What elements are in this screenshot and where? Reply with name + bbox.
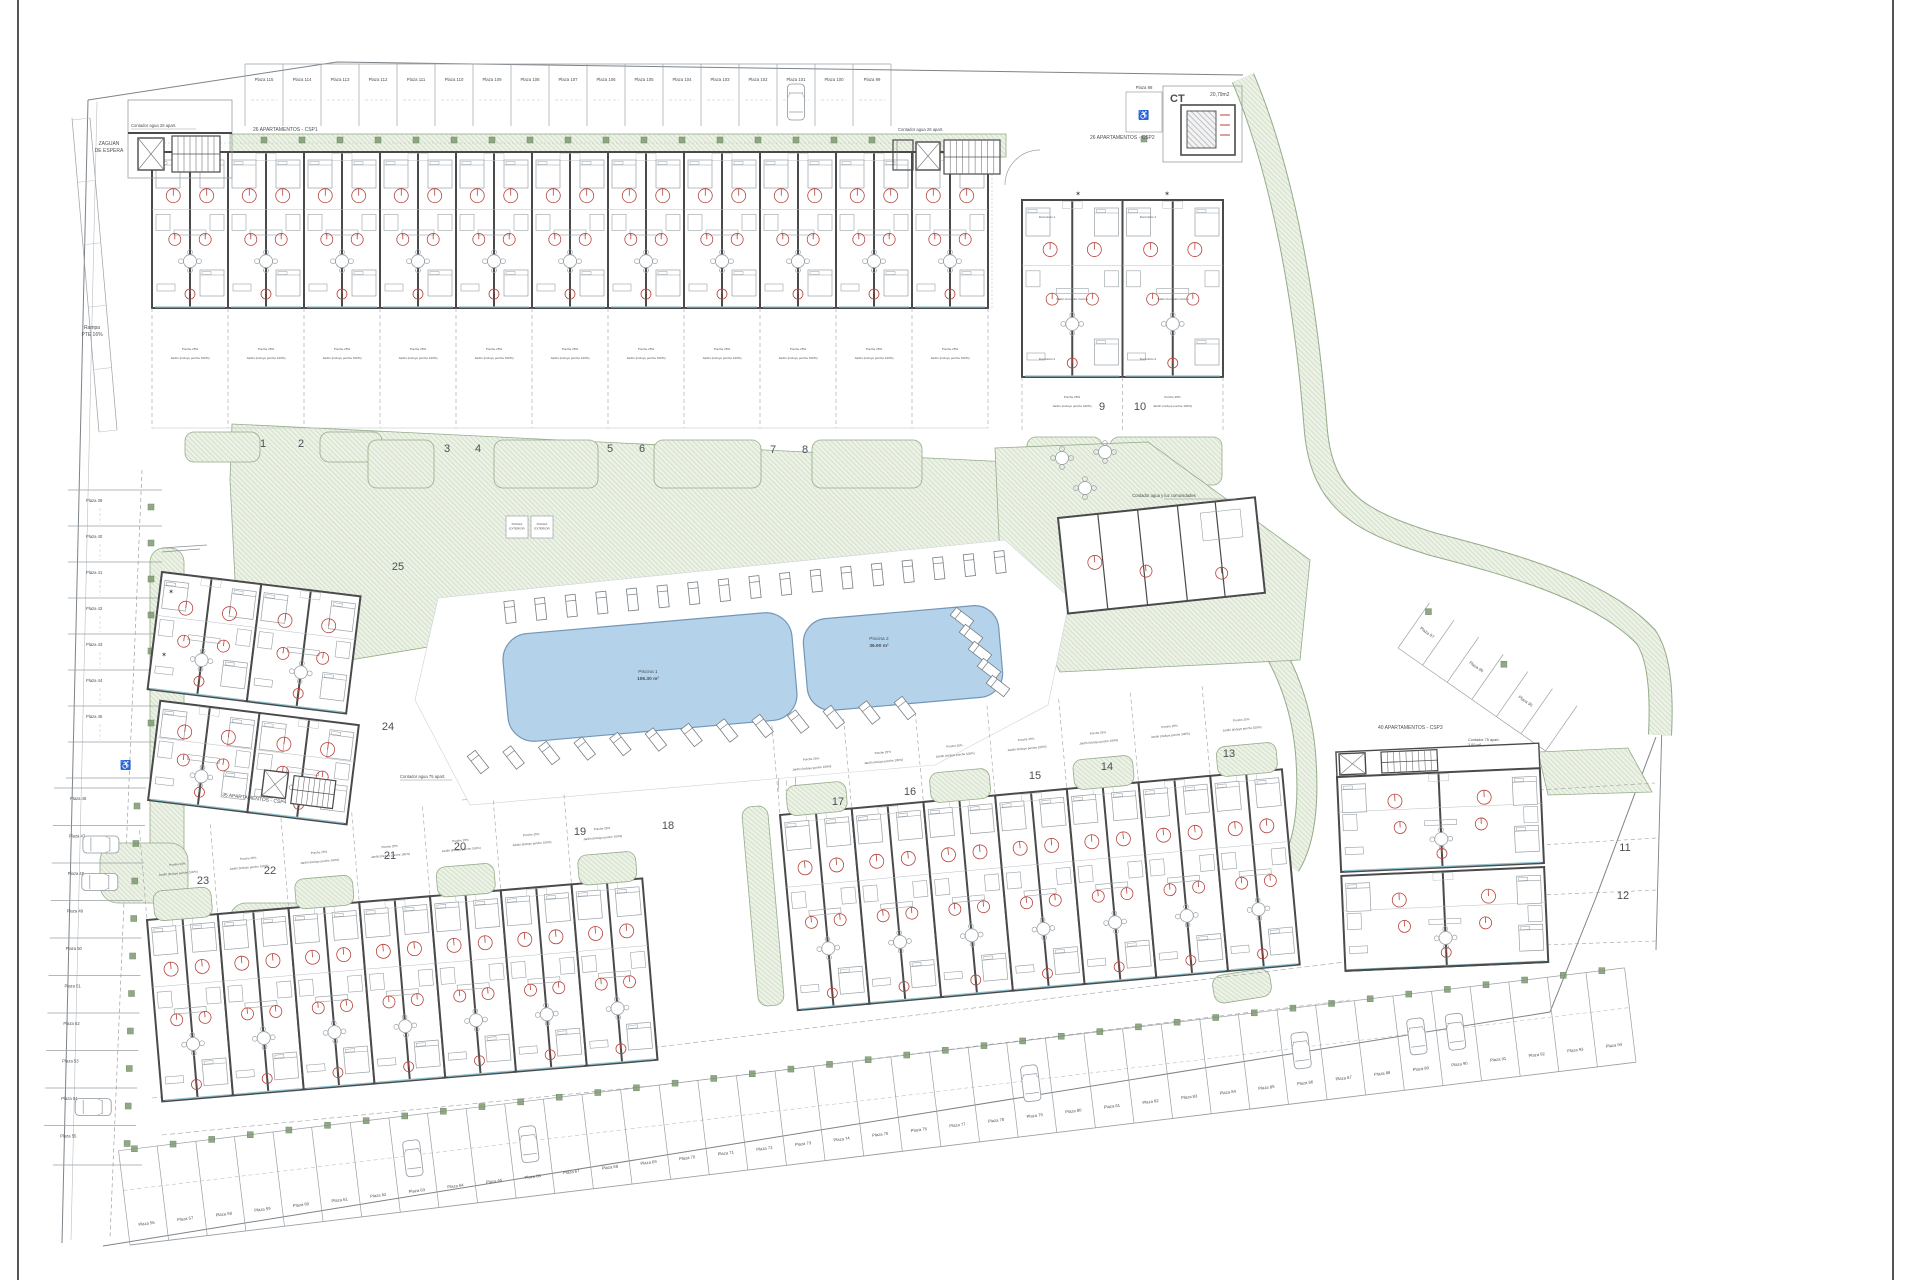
parking-label: Plaza 94 xyxy=(1606,1042,1623,1049)
bed xyxy=(580,160,604,188)
zaguan-line2: DE ESPERA xyxy=(95,148,124,154)
parking-label: Plaza 60 xyxy=(293,1201,310,1208)
hedge-marker xyxy=(337,137,343,143)
terrace-table xyxy=(1166,317,1179,330)
bed xyxy=(364,908,390,938)
green-hedge xyxy=(436,863,496,898)
bed xyxy=(910,960,936,988)
car-glyph xyxy=(75,1099,111,1116)
rampa-line1: Rampa xyxy=(84,325,100,331)
garden-caption: Porche 25% xyxy=(410,347,427,351)
garden-number-7: 7 xyxy=(770,444,776,456)
bed xyxy=(1026,208,1050,236)
parking-label: Plaza 109 xyxy=(482,77,502,82)
parking-label: Plaza 99 xyxy=(864,77,881,82)
bed xyxy=(162,580,189,611)
bed xyxy=(656,270,680,296)
site-plan-page: Plaza 115Plaza 114Plaza 113Plaza 112Plaz… xyxy=(0,0,1920,1280)
parking-label: Plaza 65 xyxy=(486,1178,503,1185)
hedge-marker xyxy=(261,137,267,143)
sun-lounger xyxy=(688,582,700,605)
hedge-marker xyxy=(131,1146,137,1152)
bed xyxy=(276,270,300,296)
hedge-marker xyxy=(131,916,137,922)
bed xyxy=(1512,776,1537,805)
bed xyxy=(200,270,224,296)
hedge-marker xyxy=(793,137,799,143)
parking-label: Plaza 63 xyxy=(408,1187,425,1194)
garden-caption: Jardín (incluye porche 100%) xyxy=(322,356,361,360)
car-glyph xyxy=(1445,1013,1466,1051)
contador-comunidades: Contador agua y luz comunidades xyxy=(1132,493,1196,498)
terrace-table xyxy=(336,255,349,268)
bed xyxy=(332,910,358,940)
terrace-table xyxy=(1066,317,1079,330)
garden-number-3: 3 xyxy=(444,443,450,455)
parking-label: Plaza 50 xyxy=(66,946,83,951)
hedge-marker xyxy=(127,1028,133,1034)
parking-label: Plaza 53 xyxy=(62,1059,79,1064)
garden-caption: Porche 25% xyxy=(182,347,199,351)
sun-lounger xyxy=(565,594,577,617)
bed xyxy=(191,922,217,952)
parking-label: Plaza 108 xyxy=(520,77,540,82)
parking-label: Plaza 76 xyxy=(910,1126,927,1133)
terrace-table xyxy=(1435,832,1449,846)
bed xyxy=(504,160,528,188)
sun-lounger xyxy=(994,551,1006,574)
garden-number-5: 5 xyxy=(607,443,613,455)
garden-caption: Jardín (incluye porche 100%) xyxy=(474,356,513,360)
garden-number-15: 15 xyxy=(1029,770,1041,782)
garden-caption: Jardín (incluye porche 100%) xyxy=(1151,732,1190,740)
star-1: ✶ xyxy=(1075,190,1081,198)
parking-label: Plaza 39 xyxy=(86,498,103,503)
parking-label: Plaza 104 xyxy=(672,77,692,82)
bed xyxy=(1215,781,1241,811)
bed xyxy=(1053,947,1079,975)
garden-number-8: 8 xyxy=(802,444,808,456)
parking-label: Plaza 83 xyxy=(1181,1093,1198,1100)
bed xyxy=(1341,784,1366,813)
parking-label: Plaza 45 xyxy=(86,714,103,719)
hedge-marker xyxy=(148,576,154,582)
terrace-table xyxy=(1079,482,1092,495)
car-glyph xyxy=(1020,1064,1041,1102)
sun-lounger xyxy=(626,588,638,611)
sun-lounger xyxy=(504,601,516,624)
garden-caption: Jardín (incluye porche 100%) xyxy=(229,864,268,871)
bed xyxy=(1072,794,1098,824)
garden-caption: Jardín (incluye porche 100%) xyxy=(778,356,817,360)
parking-label: Plaza 58 xyxy=(215,1210,232,1217)
building-csp1: Porche 25%Jardín (incluye porche 100%)Po… xyxy=(152,152,988,428)
bed xyxy=(352,160,376,188)
parking-label: Plaza 102 xyxy=(748,77,768,82)
ct-title: CT xyxy=(1170,93,1185,105)
bed xyxy=(884,270,908,296)
parking-label: Plaza 43 xyxy=(86,642,103,647)
garden-caption: Porche 25% xyxy=(1164,395,1181,399)
hedge-marker xyxy=(711,1075,717,1081)
parking-label: Plaza 95 xyxy=(1517,694,1534,708)
hedge-marker xyxy=(402,1113,408,1119)
sun-lounger xyxy=(871,563,883,586)
parking-label: Plaza 46 xyxy=(70,796,87,801)
building-csp2: Porche 25%Jardín (incluye porche 100%)Po… xyxy=(1022,200,1223,432)
bed xyxy=(1517,875,1542,904)
room-label: Salón-Comedor-Cocina xyxy=(1157,297,1189,301)
bed xyxy=(764,160,788,188)
hedge-marker xyxy=(148,504,154,510)
green-hedge xyxy=(494,440,598,488)
contador-75-area: 3.00 m² xyxy=(1468,743,1482,747)
hedge-marker xyxy=(286,1127,292,1133)
sun-lounger xyxy=(657,585,669,608)
green-hedge xyxy=(741,805,784,1007)
parking-label: Plaza 115 xyxy=(255,77,274,82)
hedge-marker xyxy=(148,612,154,618)
sun-lounger xyxy=(841,566,853,589)
terrace-table xyxy=(1056,452,1069,465)
hedge-marker xyxy=(865,1057,871,1063)
hedge-marker xyxy=(755,137,761,143)
garden-caption: Jardín (incluye porche 100%) xyxy=(583,834,622,841)
contador-agua-26-mid: Contador agua 26 apart. xyxy=(898,127,943,132)
terrace-table xyxy=(184,255,197,268)
hedge-marker xyxy=(1329,1000,1335,1006)
car-glyph xyxy=(402,1139,423,1177)
bed xyxy=(1255,778,1281,808)
hedge-marker xyxy=(1174,1019,1180,1025)
hedge-marker xyxy=(1367,996,1373,1002)
bed xyxy=(403,905,429,935)
green-hedge xyxy=(812,440,922,488)
green-hedge xyxy=(577,851,637,886)
bed xyxy=(428,270,452,296)
hedge-marker xyxy=(489,137,495,143)
bed xyxy=(229,589,256,620)
bed xyxy=(414,1040,440,1068)
garden-caption: Porche 25% xyxy=(1090,730,1107,735)
parking-label: Plaza 106 xyxy=(596,77,616,82)
garden-caption: Porche 25% xyxy=(1018,737,1035,742)
parking-label: Plaza 42 xyxy=(86,606,103,611)
hedge-marker xyxy=(1020,1038,1026,1044)
piscina2-name: Piscina 2 xyxy=(869,636,889,642)
terrace-table xyxy=(1099,446,1112,459)
bed xyxy=(259,721,286,752)
parking-label: Plaza 67 xyxy=(563,1168,580,1175)
hedge-marker xyxy=(126,1066,132,1072)
hedge-marker xyxy=(904,1052,910,1058)
hedge-marker xyxy=(518,1099,524,1105)
building-csp3 xyxy=(1336,743,1548,971)
hedge-marker xyxy=(125,1103,131,1109)
hedge-marker xyxy=(132,878,138,884)
bed xyxy=(343,1046,369,1074)
hedge-marker xyxy=(633,1085,639,1091)
sun-lounger xyxy=(810,569,822,592)
parking-label: Plaza 111 xyxy=(407,77,426,82)
garden-number-6: 6 xyxy=(639,443,645,455)
parking-label: Plaza 103 xyxy=(710,77,730,82)
apartamentos-csp2: 26 APARTAMENTOS - CSP2 xyxy=(1090,135,1155,141)
parking-label: Plaza 77 xyxy=(949,1121,966,1128)
green-hedge xyxy=(153,887,213,922)
contador-agua-26-left: Contador agua 26 apart. xyxy=(131,123,176,128)
hedge-marker xyxy=(1251,1010,1257,1016)
green-band-east xyxy=(1243,78,1661,735)
parking-label: Plaza 101 xyxy=(786,77,806,82)
hedge-marker xyxy=(148,720,154,726)
hedge-marker xyxy=(170,1141,176,1147)
car-glyph xyxy=(518,1125,539,1163)
parking-label: Plaza 96 xyxy=(1468,660,1485,674)
hedge-marker xyxy=(440,1108,446,1114)
hedge-marker xyxy=(363,1118,369,1124)
bed xyxy=(222,920,248,950)
green-hedge xyxy=(929,768,991,803)
hedge-marker xyxy=(1097,1029,1103,1035)
terrace-table xyxy=(792,255,805,268)
parking-label: Plaza 59 xyxy=(254,1206,271,1213)
room-label: Dormitorio 1 xyxy=(1039,215,1056,219)
bed xyxy=(384,160,408,188)
parking-label: Plaza 51 xyxy=(65,984,82,989)
bed xyxy=(1195,339,1219,365)
bed xyxy=(580,270,604,296)
parking-label: Plaza 73 xyxy=(795,1140,812,1147)
hedge-marker xyxy=(413,137,419,143)
garden-caption: Jardín (incluye porche 100%) xyxy=(170,356,209,360)
bed xyxy=(293,914,319,944)
bed xyxy=(1519,924,1544,951)
bed xyxy=(896,810,922,840)
garden-caption: Porche 25% xyxy=(714,347,731,351)
rampa-line2: PTE 16% xyxy=(81,332,103,338)
bed xyxy=(261,916,287,946)
bed xyxy=(838,966,864,994)
bed xyxy=(544,893,570,923)
garden-number-21: 21 xyxy=(384,850,396,862)
terrace-table xyxy=(488,255,501,268)
bed xyxy=(435,902,461,932)
parking-label: Plaza 70 xyxy=(679,1154,696,1161)
hedge-marker xyxy=(1444,986,1450,992)
garden-number-10: 10 xyxy=(1134,401,1146,413)
bed xyxy=(232,160,256,188)
terrace-table xyxy=(412,255,425,268)
hedge-marker xyxy=(299,137,305,143)
garden-caption: Porche 25% xyxy=(1233,717,1250,722)
garden-number-23: 23 xyxy=(197,875,209,887)
bed xyxy=(688,160,712,188)
garden-caption: Jardín (incluye porche 100%) xyxy=(1222,725,1261,733)
parking-label: Plaza 71 xyxy=(717,1149,734,1156)
site-plan-drawing: Plaza 115Plaza 114Plaza 113Plaza 112Plaz… xyxy=(0,0,1920,1280)
car-glyph xyxy=(83,836,119,853)
bed xyxy=(202,1058,228,1086)
bed xyxy=(556,1028,582,1056)
garden-number-18: 18 xyxy=(662,820,674,832)
garden-caption: Porche 25% xyxy=(638,347,655,351)
bed xyxy=(808,270,832,296)
sun-lounger xyxy=(596,591,608,614)
svg-text:EXTERIOR: EXTERIOR xyxy=(534,527,550,531)
parking-label: Plaza 86 xyxy=(1297,1079,1314,1086)
bed xyxy=(1095,208,1119,236)
garden-caption: Porche 25% xyxy=(311,850,328,855)
bed xyxy=(612,160,636,188)
garden-caption: Jardín (incluye porche 100%) xyxy=(1052,404,1091,408)
garden-caption: Jardín (incluye porche 100%) xyxy=(1007,745,1046,753)
bed xyxy=(352,270,376,296)
bed xyxy=(884,160,908,188)
parking-label: Plaza 100 xyxy=(824,77,844,82)
garden-caption: Porche 25% xyxy=(1161,724,1178,729)
garden-caption: Jardín (incluye porche 100%) xyxy=(512,840,551,847)
car-glyph xyxy=(82,874,118,891)
garden-caption: Porche 25% xyxy=(594,826,611,831)
star-4: ✶ xyxy=(161,651,167,659)
parking-label: Plaza 66 xyxy=(524,1173,541,1180)
parking-label: Plaza 87 xyxy=(1335,1074,1352,1081)
parking-label: Plaza 78 xyxy=(988,1117,1005,1124)
garden-caption: Jardín (incluye porche 100%) xyxy=(626,356,665,360)
terrace-table xyxy=(1439,931,1453,945)
bed xyxy=(856,814,882,844)
room-label: Dormitorio 1 xyxy=(1140,215,1157,219)
bed xyxy=(1183,784,1209,814)
apartamentos-csp1: 26 APARTAMENTOS - CSP1 xyxy=(253,127,318,133)
hedge-marker xyxy=(1058,1033,1064,1039)
terrace-table xyxy=(944,255,957,268)
bed xyxy=(1195,208,1219,236)
parking-label: Plaza 75 xyxy=(872,1131,889,1138)
hedge-marker xyxy=(831,137,837,143)
parking-label: Plaza 93 xyxy=(1567,1046,1584,1053)
outdoor-shower: DUCHAEXTERIOR xyxy=(531,516,553,538)
hedge-marker xyxy=(148,540,154,546)
terrace-table xyxy=(260,255,273,268)
bed xyxy=(576,890,602,920)
hedge-marker xyxy=(129,991,135,997)
bed xyxy=(968,804,994,834)
terrace-table xyxy=(640,255,653,268)
parking-label: Plaza 88 xyxy=(1374,1070,1391,1077)
garden-caption: Jardín (incluye porche 100%) xyxy=(854,356,893,360)
green-hedge xyxy=(294,875,354,910)
bed xyxy=(960,270,984,296)
parking-label: Plaza 112 xyxy=(369,77,388,82)
bed xyxy=(1040,797,1066,827)
parking-label: Plaza 44 xyxy=(86,678,103,683)
hedge-marker xyxy=(134,803,140,809)
contador-agua-75: Contador agua 75 apart. xyxy=(400,774,445,779)
bed xyxy=(1143,788,1169,818)
hedge-marker xyxy=(717,137,723,143)
terrace-table xyxy=(716,255,729,268)
parking-label: Plaza 79 xyxy=(1026,1112,1043,1119)
hedge-marker xyxy=(679,137,685,143)
garden-number-9: 9 xyxy=(1099,401,1105,413)
garden-caption: Porche 25% xyxy=(240,856,257,861)
parking-label: Plaza 114 xyxy=(293,77,312,82)
bed xyxy=(808,160,832,188)
contador-75: Contador 75 apart. xyxy=(1468,738,1500,742)
accessible-icon: ♿ xyxy=(120,759,131,770)
garden-number-20: 20 xyxy=(454,841,466,853)
bed xyxy=(160,709,187,740)
garden-caption: Porche 25% xyxy=(486,347,503,351)
room-label: Salón-Comedor-Cocina xyxy=(1056,297,1088,301)
garden-caption: Jardín (incluye porche 100%) xyxy=(398,356,437,360)
svg-text:DUCHA: DUCHA xyxy=(537,522,548,526)
garden-caption: Porche 25% xyxy=(790,347,807,351)
garden-caption: Jardín (incluye porche 100%) xyxy=(930,356,969,360)
parking-stall-98: Plaza 98♿ xyxy=(1126,85,1162,142)
pool-2 xyxy=(801,604,1004,713)
apartamentos-csp3: 40 APARTAMENTOS - CSP3 xyxy=(1378,725,1443,731)
bed xyxy=(1111,791,1137,821)
bed xyxy=(1125,940,1151,968)
bed xyxy=(328,601,355,632)
hedge-marker xyxy=(565,137,571,143)
hedge-marker xyxy=(788,1066,794,1072)
accessible-icon: ♿ xyxy=(1138,109,1149,120)
terrace-table xyxy=(564,255,577,268)
hedge-marker xyxy=(749,1071,755,1077)
green-hedge xyxy=(1211,968,1273,1005)
garden-number-11: 11 xyxy=(1619,842,1630,854)
bed xyxy=(732,270,756,296)
bed xyxy=(825,817,851,847)
entry-arc xyxy=(1005,150,1040,185)
piscina1-name: Piscina 1 xyxy=(638,669,658,675)
hedge-marker xyxy=(672,1080,678,1086)
hedge-marker xyxy=(827,1061,833,1067)
garden-caption: Porche 25% xyxy=(523,832,540,837)
bed xyxy=(732,160,756,188)
garden-caption: Porche 25% xyxy=(1064,395,1081,399)
bed xyxy=(273,1052,299,1080)
bed xyxy=(1000,801,1026,831)
bed xyxy=(982,953,1008,981)
star-3: ✶ xyxy=(168,588,174,596)
parking-label: Plaza 68 xyxy=(602,1164,619,1171)
hedge-marker xyxy=(1483,982,1489,988)
hedge-marker xyxy=(1135,1024,1141,1030)
bed xyxy=(615,887,641,917)
sun-lounger xyxy=(535,597,547,620)
bed xyxy=(276,160,300,188)
sun-lounger xyxy=(902,560,914,583)
parking-label: Plaza 80 xyxy=(1065,1107,1082,1114)
parking-label: Plaza 55 xyxy=(60,1134,77,1139)
piscina1-area: 106.30 m² xyxy=(637,676,659,682)
garden-caption: Jardín (incluye porche 100%) xyxy=(1153,404,1192,408)
bed xyxy=(785,820,811,850)
parking-label: Plaza 72 xyxy=(756,1145,773,1152)
garden-caption: Porche 25% xyxy=(258,347,275,351)
sun-lounger xyxy=(963,554,975,577)
parking-label: Plaza 82 xyxy=(1142,1098,1159,1105)
garden-caption: Jardín (incluye porche 100%) xyxy=(702,356,741,360)
parking-label: Plaza 57 xyxy=(177,1215,194,1222)
hedge-marker xyxy=(133,841,139,847)
hedge-marker xyxy=(595,1090,601,1096)
